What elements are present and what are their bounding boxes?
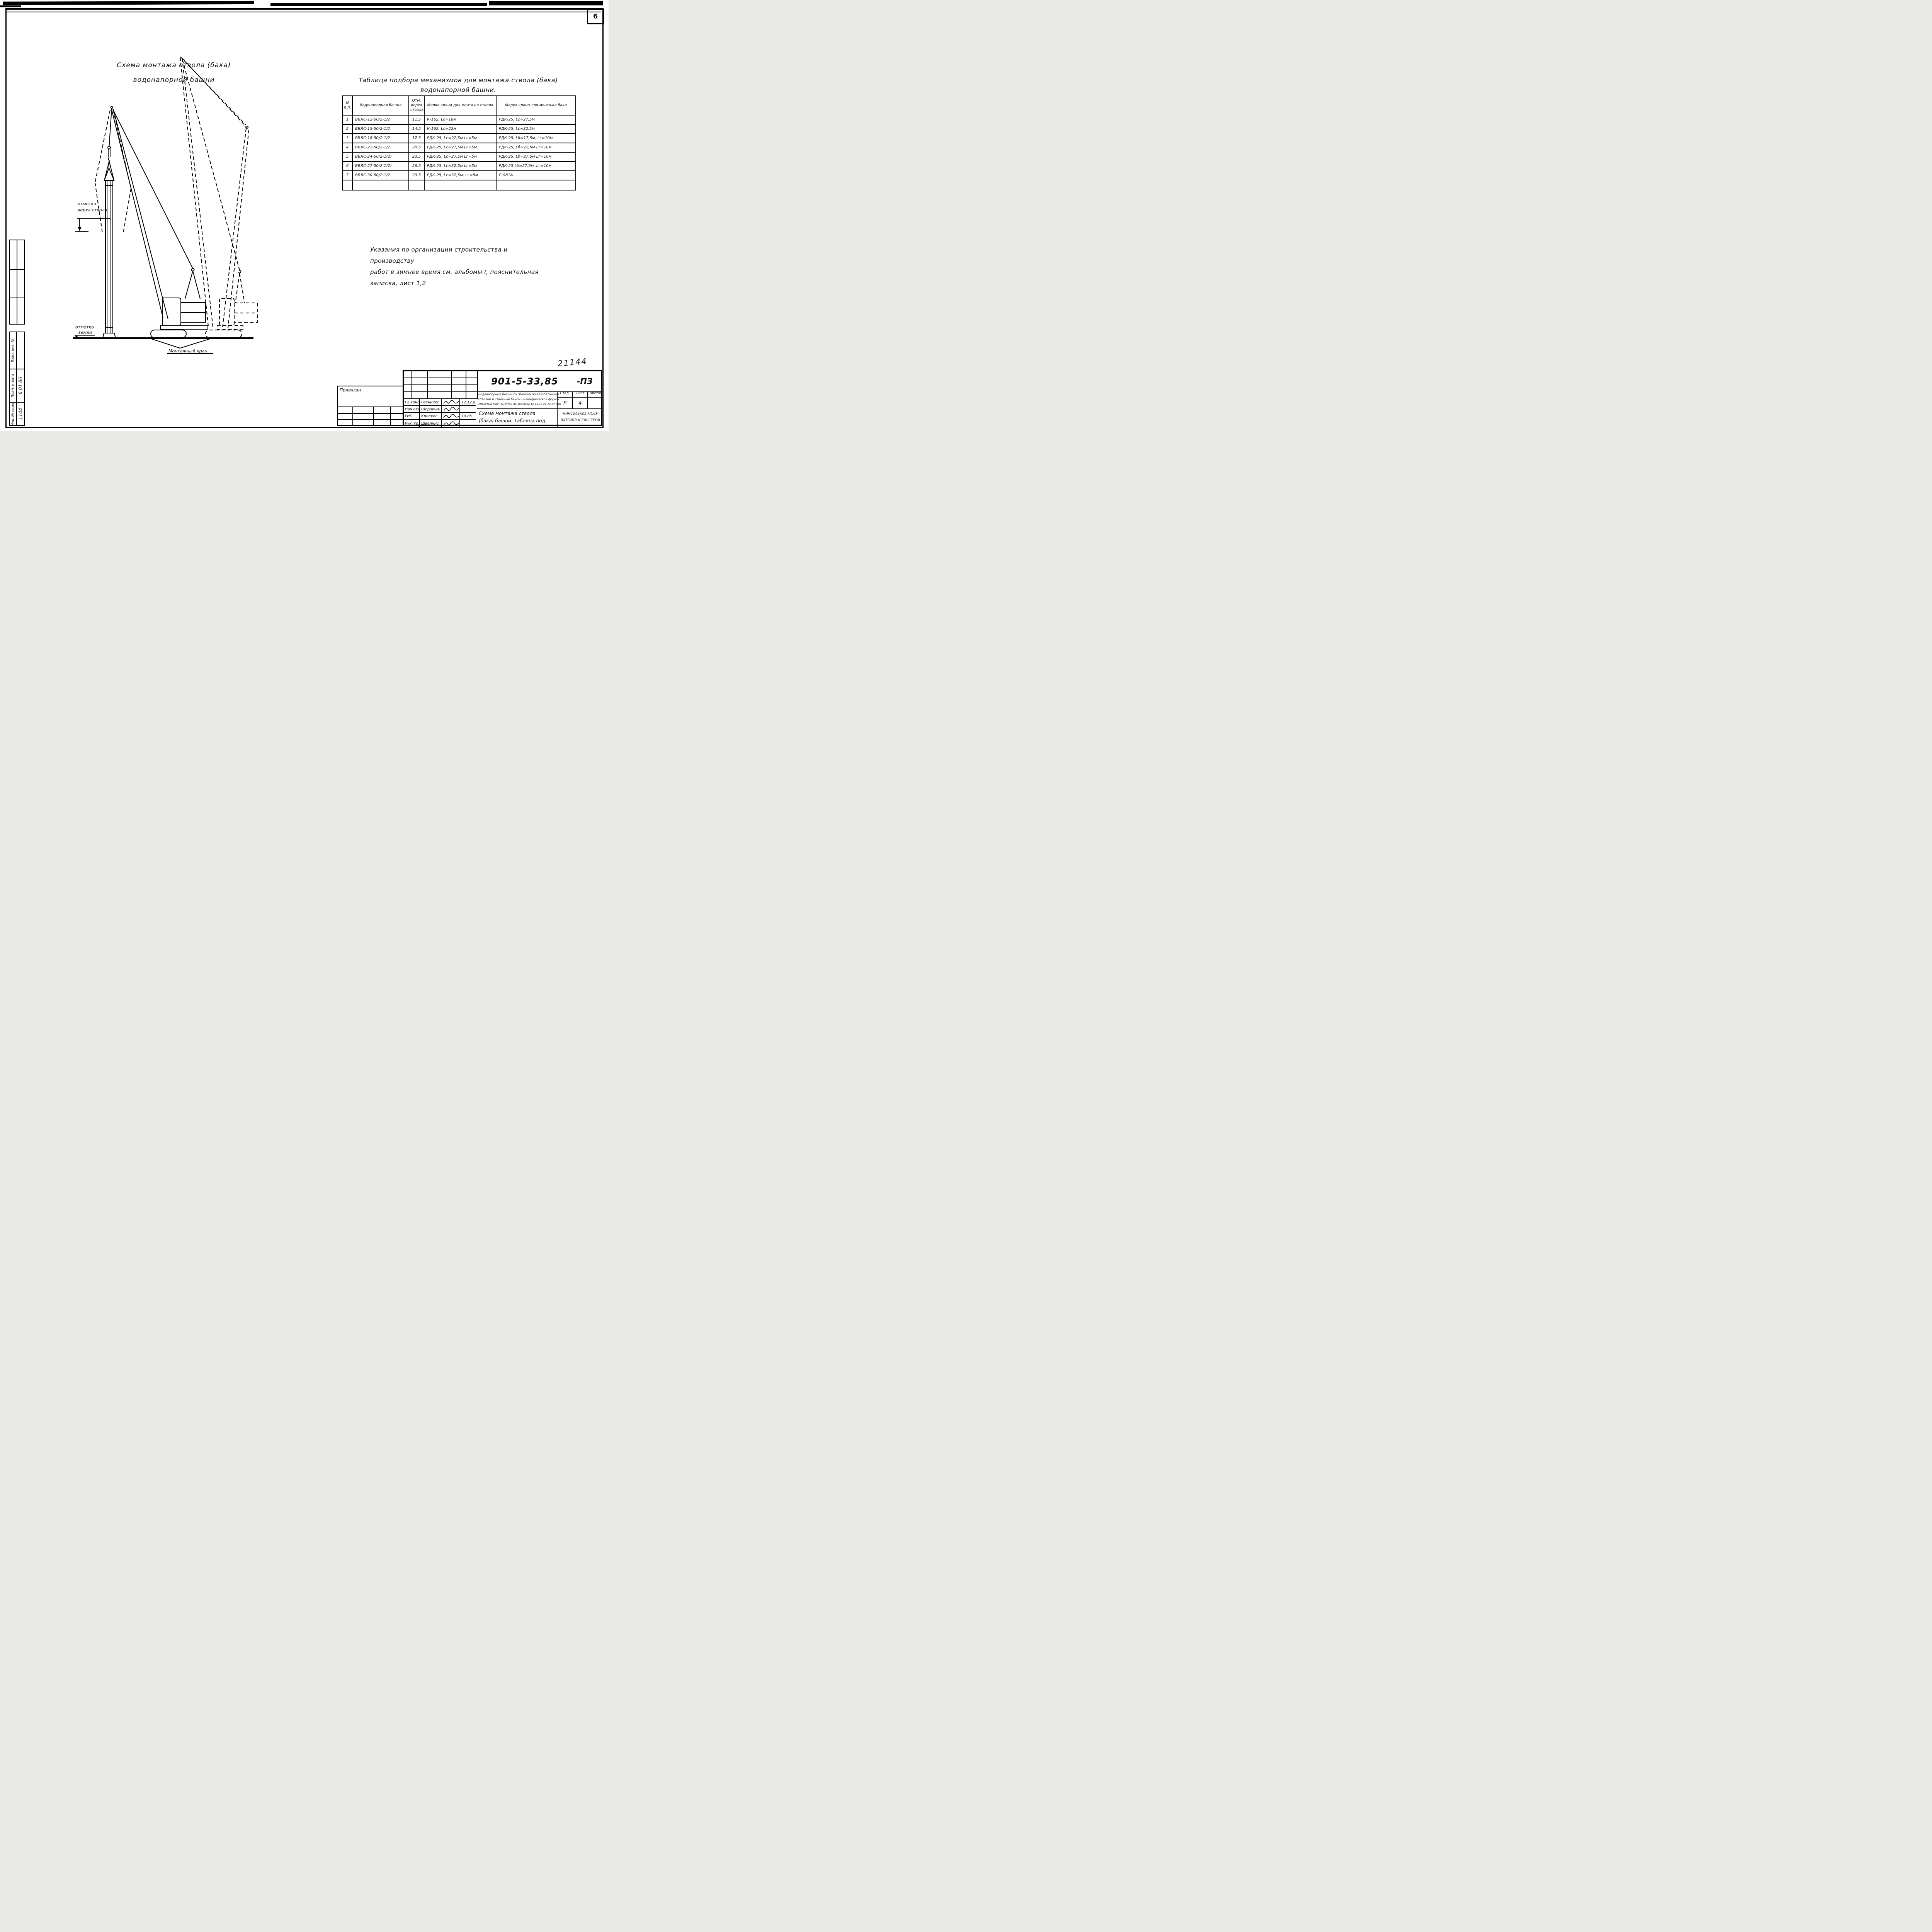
table-row: 5 ВБЛС-24-50/2-1(2) 23.5 РДК-25, Lс=27,5… bbox=[342, 152, 576, 162]
sheet-label: Лист bbox=[573, 391, 588, 397]
side-cell-inv-label: Инв. № подл. bbox=[9, 402, 17, 426]
side-cell-podp-label: Подп. и дата bbox=[9, 369, 17, 403]
cell-crane-shaft: РДК-25, Lс=32,5м, Lг=5м bbox=[424, 171, 496, 180]
cell-crane-shaft: РДК-25, Lс=27,5м Lг=5м bbox=[424, 152, 496, 162]
page-number: 6 bbox=[593, 13, 598, 20]
sheet-frame-inner-line bbox=[5, 12, 601, 12]
scan-artifact bbox=[0, 5, 21, 7]
cell-num: 3 bbox=[342, 134, 352, 143]
col-header-elev: Отм. верха ствола bbox=[409, 96, 424, 115]
side-cell-inv-value: 1144 bbox=[16, 402, 25, 426]
cell-tower: ВБЛС-30-50/2-1/2 bbox=[352, 171, 409, 180]
notes-line1: Указания по организации строительства и … bbox=[370, 244, 552, 267]
notes-line3: записка, лист 1,2 bbox=[370, 278, 552, 289]
cell-num: 6 bbox=[342, 162, 352, 171]
notes-text: Указания по организации строительства и … bbox=[370, 244, 552, 289]
cell-elev: 17.5 bbox=[409, 134, 424, 143]
doc-number-cell: 901-5-33,85 -ПЗ bbox=[477, 371, 603, 392]
doc-suffix: -ПЗ bbox=[577, 377, 593, 386]
signature-scribble bbox=[442, 399, 460, 406]
ground-mark-label-line2: земли bbox=[78, 330, 92, 335]
notes-line2: работ в зимнее время см. альбомы I, пояс… bbox=[370, 267, 552, 278]
table-row: 7 ВБЛС-30-50/2-1/2 29.5 РДК-25, Lс=32,5м… bbox=[342, 171, 576, 180]
signature-scribble bbox=[442, 413, 460, 420]
cell-tower: ВБЛС-21-50/2-1/2 bbox=[352, 143, 409, 152]
cell-num: 5 bbox=[342, 152, 352, 162]
description-line1: Водонапорные башни со сборным железобето… bbox=[478, 392, 556, 397]
org-line1: минсельхоз ЛССР bbox=[558, 412, 603, 416]
signature-scribble bbox=[442, 406, 460, 413]
crane-boom bbox=[109, 107, 168, 320]
cell-crane-tank: РДК-25, Lб=22,5м Lг=10м bbox=[496, 143, 576, 152]
cell-elev: 14.5 bbox=[409, 124, 424, 134]
sheet-title-line2: (бака) башни. Таблица под. bbox=[479, 417, 555, 425]
stage-label: Стад. bbox=[558, 391, 573, 397]
cell-elev: 26.5 bbox=[409, 162, 424, 171]
col-header-crane-shaft: Марка крана для монтажа ствола bbox=[424, 96, 496, 115]
auxiliary-hook-rope bbox=[113, 109, 200, 299]
sig-role: Гл.констр bbox=[404, 399, 420, 406]
cell-crane-shaft: РДК-25, Lс=27,5м Lг=5м bbox=[424, 143, 496, 152]
side-cell-podp-value: 6 01 86 bbox=[16, 369, 25, 403]
sig-role: ГИП bbox=[404, 413, 420, 420]
side-cell-vzam-label: Взам. инв. № bbox=[9, 332, 17, 369]
table-row: 4 ВБЛС-21-50/2-1/2 20.5 РДК-25, Lс=27,5м… bbox=[342, 143, 576, 152]
table-row: 3 ВБЛС-18-50/2-1/2 17.5 РДК-25, Lс=22,5м… bbox=[342, 134, 576, 143]
attach-box: Привязан bbox=[337, 386, 403, 407]
drawing-sheet: 6 Схема монтажа ствола (бака) водонапорн… bbox=[0, 0, 609, 431]
cell-crane-shaft: РДК-25, Lс=22,5м Lг=5м bbox=[424, 134, 496, 143]
mechanism-selection-table: N п.п. Водонапорная башня Отм. верха ств… bbox=[342, 95, 576, 190]
cell-crane-tank: РДК-25, Lб=27,5м Lг=10м bbox=[496, 152, 576, 162]
sig-date: 10.85 bbox=[460, 413, 476, 420]
signature-row: Гл.констр Ратниекс 12.12.83 bbox=[404, 399, 477, 406]
cell-tower: ВБЛС-18-50/2-1/2 bbox=[352, 134, 409, 143]
sheet-title-cell: Схема монтажа ствола (бака) башни. Табли… bbox=[477, 408, 558, 427]
sig-role: Нач отд bbox=[404, 406, 420, 413]
description-line2: стволом и стальным баком цилиндрической … bbox=[478, 397, 556, 402]
tower-shaft bbox=[103, 180, 116, 338]
doc-number: 901-5-33,85 bbox=[491, 376, 558, 387]
org-line2: ЛАТГИПРОСЕЛЬСТРОЙ bbox=[558, 418, 603, 422]
scan-artifact bbox=[489, 1, 603, 5]
signature-row: ГИП Криекис 10.85 bbox=[404, 413, 477, 420]
sig-name: Швелнис bbox=[420, 420, 442, 427]
cell-crane-shaft: РДК-25, Lс=32,5м Lг=5м bbox=[424, 162, 496, 171]
signature-row: Рук. гр. Швелнис bbox=[404, 420, 477, 427]
cell-elev: 11.5 bbox=[409, 115, 424, 124]
cell-elev: 20.5 bbox=[409, 143, 424, 152]
revision-grid bbox=[404, 371, 478, 399]
podp-value: 6 01 86 bbox=[18, 377, 23, 395]
cell-tower: ВБЛС-27-50/2-1(2) bbox=[352, 162, 409, 171]
sheet-value: 4 bbox=[573, 398, 588, 408]
cell-num: 1 bbox=[342, 115, 352, 124]
sig-role: Рук. гр. bbox=[404, 420, 420, 427]
stage-value: Р bbox=[558, 398, 573, 408]
signature-row: Нач отд Шершень bbox=[404, 406, 477, 413]
cell-crane-tank: С-981А bbox=[496, 171, 576, 180]
table-title-line2: водонапорной башни. bbox=[340, 85, 577, 95]
table-row: 2 ВБЛС-15-50/2-1/2 14.5 К-162, Lс=22м РД… bbox=[342, 124, 576, 134]
cell-tower: ВБЛС-24-50/2-1(2) bbox=[352, 152, 409, 162]
inv-value: 1144 bbox=[18, 408, 23, 420]
crane-label: Монтажный кран bbox=[168, 349, 207, 354]
cell-crane-tank: РДК-25, Lб=17,5м, Lг=10м bbox=[496, 134, 576, 143]
table-title-line1: Таблица подбора механизмов для монтажа с… bbox=[340, 75, 577, 85]
cell-tower: ВБЛС-15-50/2-1/2 bbox=[352, 124, 409, 134]
attach-label: Привязан bbox=[340, 388, 361, 393]
cell-num: 2 bbox=[342, 124, 352, 134]
organization-cell: минсельхоз ЛССР ЛАТГИПРОСЕЛЬСТРОЙ bbox=[558, 408, 603, 427]
project-description: Водонапорные башни со сборным железобето… bbox=[477, 391, 558, 409]
sig-name: Шершень bbox=[420, 406, 442, 413]
cell-elev: 23.5 bbox=[409, 152, 424, 162]
table-row-empty bbox=[342, 180, 576, 190]
cell-crane-shaft: К-162, Lс=22м bbox=[424, 124, 496, 134]
title-block: Гл.констр Ратниекс 12.12.83 Нач отд Шерш… bbox=[403, 370, 602, 426]
sig-date bbox=[460, 406, 476, 413]
stage-sheet-table: Стад. Лист Листов Р 4 bbox=[558, 391, 603, 409]
crane-hook bbox=[104, 146, 114, 181]
inv-label: Инв. № подл. bbox=[11, 402, 15, 426]
signature-scribble bbox=[442, 420, 460, 427]
scan-artifact bbox=[3, 1, 254, 5]
top-elevation-arrowhead bbox=[78, 227, 82, 231]
signature-block: Гл.констр Ратниекс 12.12.83 Нач отд Шерш… bbox=[404, 398, 477, 428]
scan-artifact bbox=[270, 3, 487, 6]
col-header-tower: Водонапорная башня bbox=[352, 96, 409, 115]
cell-crane-shaft: К-162, Lс=18м bbox=[424, 115, 496, 124]
sheets-label: Листов bbox=[588, 391, 603, 397]
tower-crane-drawing: отметка верха ствола отметка земли Монта… bbox=[73, 51, 258, 356]
sheet-title-line1: Схема монтажа ствола bbox=[479, 410, 555, 417]
cell-crane-tank: РДК-25, Lс=32,5м bbox=[496, 124, 576, 134]
col-header-num: N п.п. bbox=[342, 96, 352, 115]
table-row: 6 ВБЛС-27-50/2-1(2) 26.5 РДК-25, Lс=32,5… bbox=[342, 162, 576, 171]
page-number-box: 6 bbox=[587, 9, 604, 24]
crane-second-position-dashed bbox=[180, 56, 257, 338]
cell-tower: ВБЛС-12-50/2-1/2 bbox=[352, 115, 409, 124]
description-line3: емкостью 50м³, высотой до дна бака 12,15… bbox=[478, 402, 556, 407]
cell-num: 7 bbox=[342, 171, 352, 180]
podp-label: Подп. и дата bbox=[11, 374, 15, 397]
table-row: 1 ВБЛС-12-50/2-1/2 11.5 К-162, Lс=18м РД… bbox=[342, 115, 576, 124]
top-mark-label-line2: верха ствола bbox=[78, 207, 107, 213]
side-grid bbox=[9, 240, 25, 325]
cell-crane-tank: РДК-25 Lб=27,5м, Lг=10м bbox=[496, 162, 576, 171]
ground-mark-label-line1: отметка bbox=[75, 325, 94, 330]
top-mark-label-line1: отметка bbox=[78, 201, 96, 206]
sig-name: Ратниекс bbox=[420, 399, 442, 406]
sig-date: 12.12.83 bbox=[460, 399, 476, 406]
sheets-value bbox=[588, 398, 603, 408]
vzam-label: Взам. инв. № bbox=[11, 338, 15, 362]
sig-date bbox=[460, 420, 476, 427]
sig-name: Криекис bbox=[420, 413, 442, 420]
col-header-crane-tank: Марка крана для монтажа бака bbox=[496, 96, 576, 115]
side-cell-vzam-value bbox=[16, 332, 25, 369]
cell-crane-tank: РДК-25, Lс=27,5м bbox=[496, 115, 576, 124]
attach-grid bbox=[337, 406, 403, 426]
cell-elev: 29.5 bbox=[409, 171, 424, 180]
cell-num: 4 bbox=[342, 143, 352, 152]
table-title: Таблица подбора механизмов для монтажа с… bbox=[340, 75, 577, 95]
